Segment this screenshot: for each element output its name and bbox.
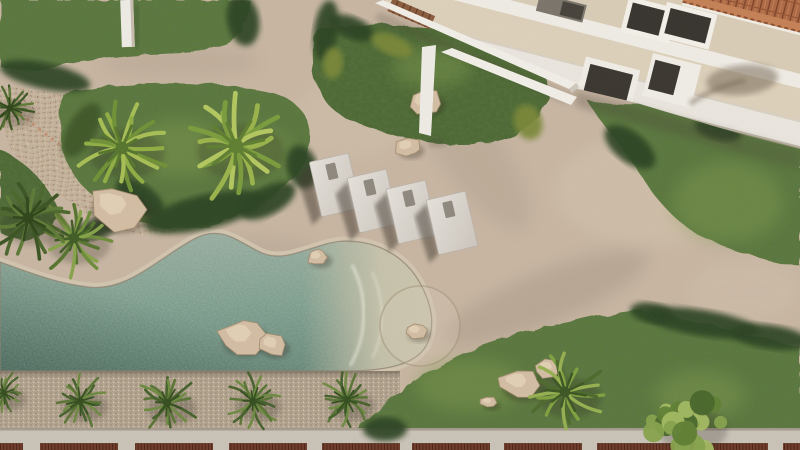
aerial-render: [0, 0, 800, 450]
scene-svg: [0, 0, 800, 450]
film-grain: [0, 0, 800, 450]
